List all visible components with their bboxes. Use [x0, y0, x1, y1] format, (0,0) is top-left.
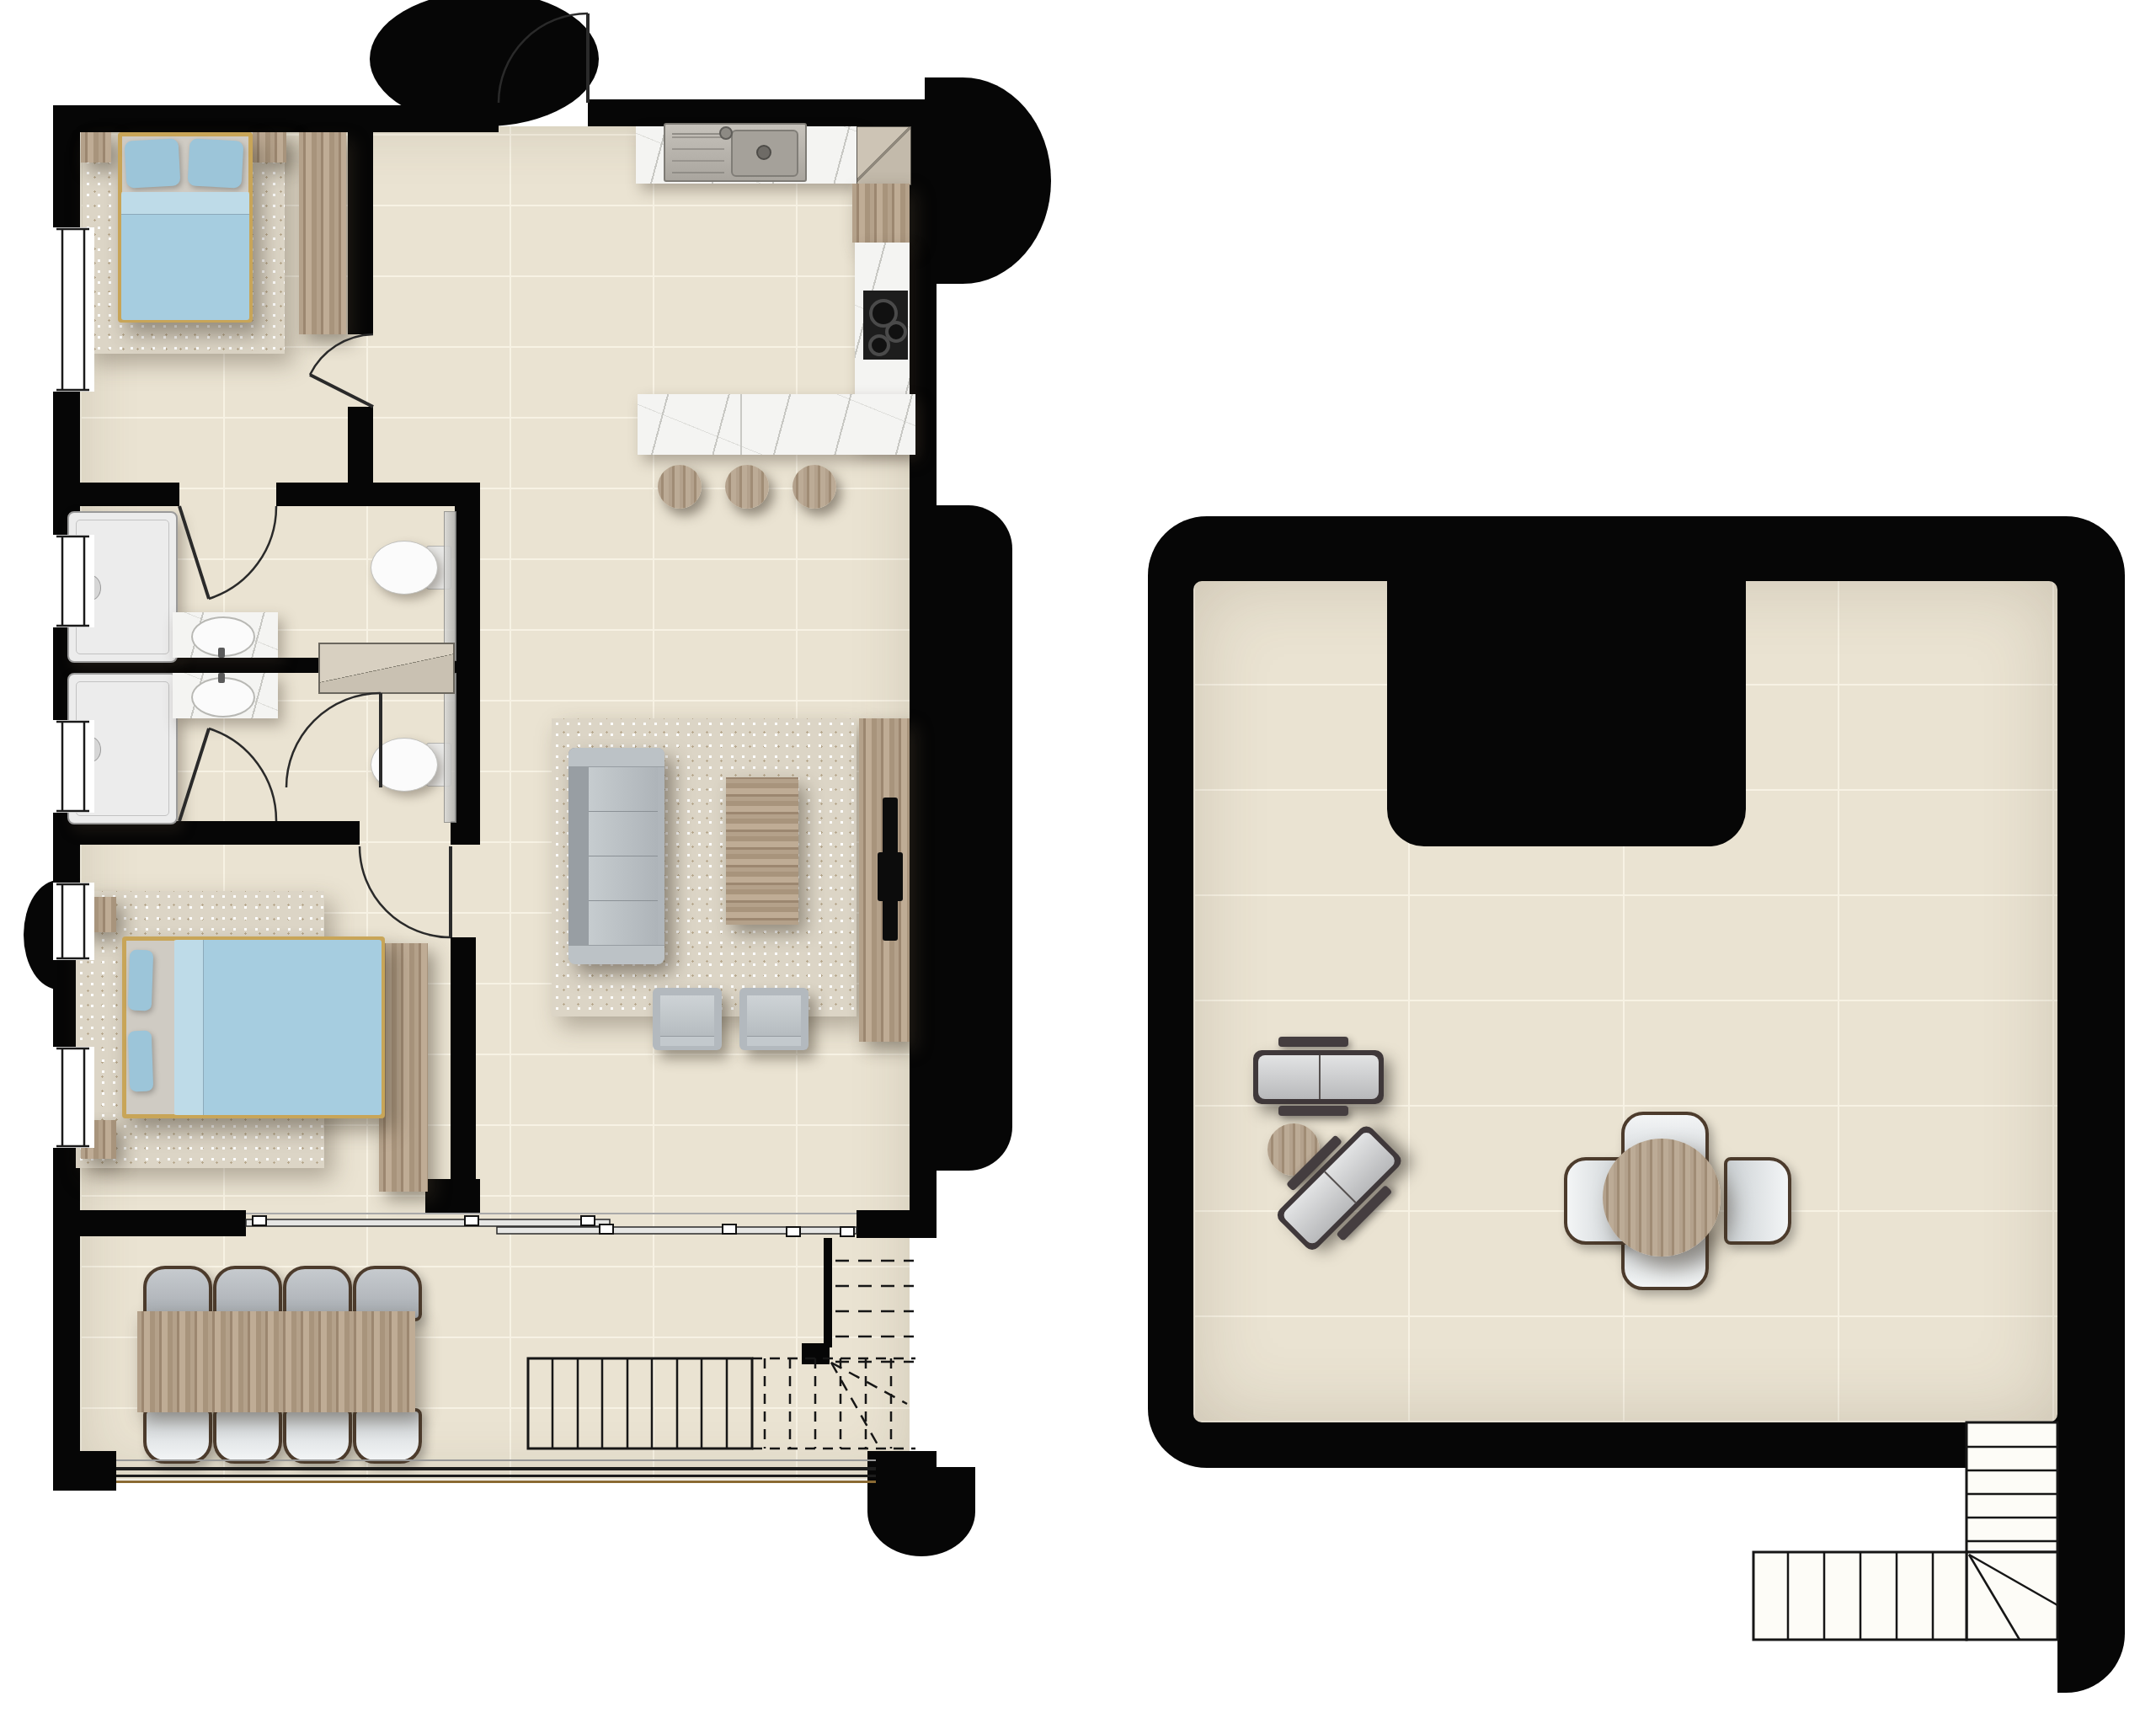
terrace-round-table	[1603, 1139, 1721, 1256]
lounger-split-line	[1319, 1055, 1321, 1099]
floor-plan-canvas	[0, 0, 2156, 1718]
terrace-stair-side-wall	[2057, 1422, 2125, 1693]
sun-lounger-1	[1253, 1050, 1384, 1104]
lounger1-rail-bottom	[1278, 1106, 1348, 1116]
terrace-notch-wall	[1387, 516, 1746, 846]
roof-terrace-plan	[0, 0, 2156, 1718]
lounger1-rail-top	[1278, 1037, 1348, 1047]
terrace-chair-right	[1724, 1157, 1791, 1245]
